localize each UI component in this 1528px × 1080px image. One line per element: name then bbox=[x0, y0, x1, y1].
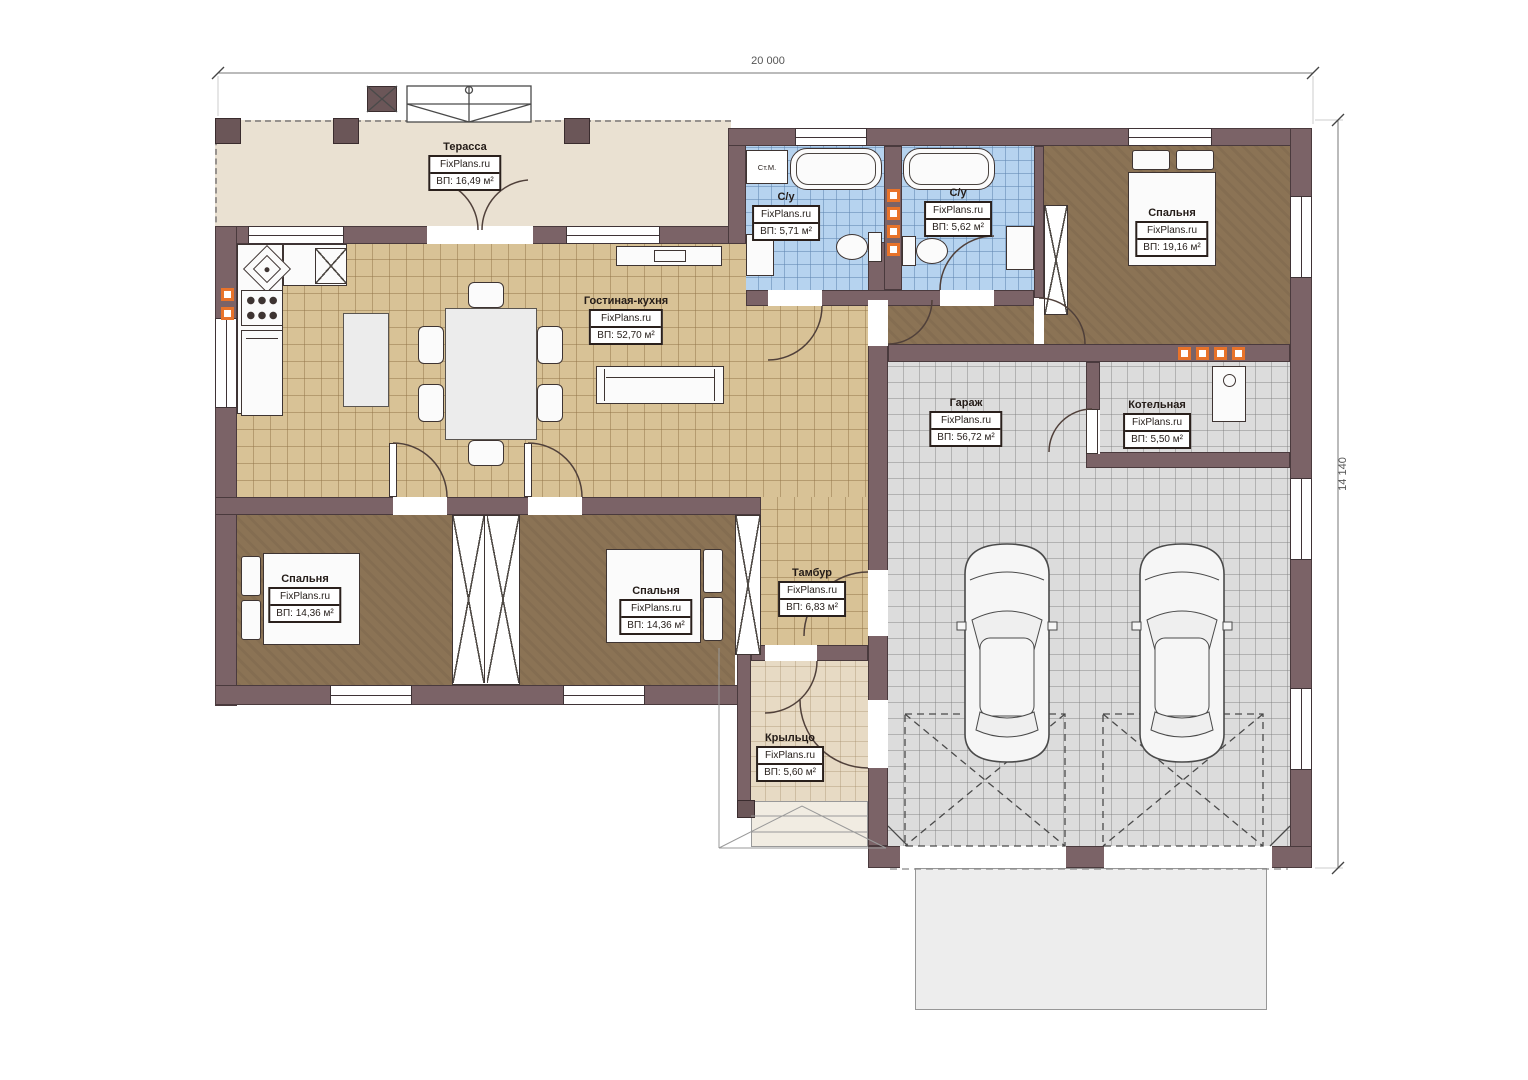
window-bedroom-main-top bbox=[1128, 128, 1212, 146]
room-name: С/у bbox=[752, 190, 820, 204]
door-opening-hall bbox=[868, 300, 888, 346]
bathtub-2 bbox=[903, 148, 995, 190]
vent-block bbox=[887, 207, 900, 220]
bed-main-pillow bbox=[1176, 150, 1214, 170]
watermark: FixPlans.ru bbox=[621, 601, 690, 618]
room-label-terrace: Терасса FixPlans.ru ВП: 16,49 м² bbox=[428, 140, 501, 191]
bed-main-pillow bbox=[1132, 150, 1170, 170]
room-area: ВП: 5,50 м² bbox=[1125, 432, 1189, 447]
room-area: ВП: 14,36 м² bbox=[621, 618, 690, 633]
room-name: С/у bbox=[924, 186, 992, 200]
kitchen-sink2-icon bbox=[315, 248, 347, 284]
window-garage-right-1 bbox=[1290, 478, 1312, 560]
wall-bath2-right bbox=[1034, 146, 1044, 298]
wall-boiler-left bbox=[1086, 362, 1100, 410]
window-bedroom-a bbox=[330, 685, 412, 705]
watermark: FixPlans.ru bbox=[926, 203, 990, 220]
stove-icon bbox=[241, 290, 283, 326]
room-name: Тамбур bbox=[778, 566, 846, 580]
window-bedroom-main-right bbox=[1290, 196, 1312, 278]
room-label-boiler-room: Котельная FixPlans.ru ВП: 5,50 м² bbox=[1123, 398, 1191, 449]
room-area: ВП: 5,71 м² bbox=[754, 224, 818, 239]
room-area: ВП: 5,62 м² bbox=[926, 220, 990, 235]
bathtub-1 bbox=[790, 148, 882, 190]
floor-plan: Ст.М. bbox=[0, 0, 1528, 1080]
room-area: ВП: 6,83 м² bbox=[780, 600, 844, 615]
washing-machine: Ст.М. bbox=[746, 150, 788, 184]
terrace-post-2 bbox=[333, 118, 359, 144]
window-bath1 bbox=[795, 128, 867, 146]
room-name: Котельная bbox=[1123, 398, 1191, 412]
sofa-arm bbox=[597, 369, 605, 401]
chair bbox=[468, 282, 504, 308]
room-label-porch: Крыльцо FixPlans.ru ВП: 5,60 м² bbox=[756, 731, 824, 782]
door-opening-vestibule-porch bbox=[765, 645, 817, 661]
toilet-2-bowl bbox=[916, 238, 948, 264]
vent-block bbox=[887, 225, 900, 238]
tv-unit bbox=[616, 246, 722, 266]
wall-bedrooms-bottom bbox=[215, 685, 751, 705]
dining-table bbox=[445, 308, 537, 440]
room-name: Спальня bbox=[619, 584, 692, 598]
room-name: Спальня bbox=[1135, 206, 1208, 220]
room-area: ВП: 52,70 м² bbox=[591, 328, 660, 343]
toilet-1-tank bbox=[868, 232, 882, 262]
watermark: FixPlans.ru bbox=[758, 748, 822, 765]
dimension-height: 14 140 bbox=[1337, 439, 1349, 509]
room-label-living-kitchen: Гостиная-кухня FixPlans.ru ВП: 52,70 м² bbox=[584, 294, 668, 345]
watermark: FixPlans.ru bbox=[430, 157, 499, 174]
door-opening-bedroom-main bbox=[1034, 298, 1044, 344]
vent-block bbox=[887, 243, 900, 256]
wall-porch-left bbox=[737, 645, 751, 805]
bed-a-pillow bbox=[241, 600, 261, 640]
room-name: Гостиная-кухня bbox=[584, 294, 668, 308]
door-leaf-bedroom-a bbox=[389, 443, 397, 497]
room-label-bathroom-2: С/у FixPlans.ru ВП: 5,62 м² bbox=[924, 186, 992, 237]
bed-b-pillow bbox=[703, 549, 723, 593]
room-label-bedroom-a: Спальня FixPlans.ru ВП: 14,36 м² bbox=[268, 572, 341, 623]
vent-block bbox=[1232, 347, 1245, 360]
watermark: FixPlans.ru bbox=[1137, 223, 1206, 240]
door-opening-bath1 bbox=[768, 290, 822, 306]
vent-block bbox=[221, 288, 234, 301]
room-label-bedroom-b: Спальня FixPlans.ru ВП: 14,36 м² bbox=[619, 584, 692, 635]
door-opening-bath2 bbox=[940, 290, 994, 306]
bed-a-pillow bbox=[241, 556, 261, 596]
room-label-vestibule: Тамбур FixPlans.ru ВП: 6,83 м² bbox=[778, 566, 846, 617]
vent-block bbox=[1178, 347, 1191, 360]
room-label-bedroom-main: Спальня FixPlans.ru ВП: 19,16 м² bbox=[1135, 206, 1208, 257]
wall-bedroom-strip-top bbox=[215, 497, 761, 515]
window-kitchen-left bbox=[215, 318, 237, 408]
sofa-arm bbox=[707, 369, 715, 401]
vent-block bbox=[1214, 347, 1227, 360]
watermark: FixPlans.ru bbox=[931, 413, 1000, 430]
chair bbox=[537, 384, 563, 422]
room-area: ВП: 14,36 м² bbox=[270, 606, 339, 621]
fridge-icon bbox=[241, 330, 283, 416]
room-area: ВП: 16,49 м² bbox=[430, 174, 499, 189]
vanity-2 bbox=[1006, 226, 1034, 270]
door-opening-terrace bbox=[427, 226, 533, 244]
sofa-back bbox=[606, 369, 714, 378]
watermark: FixPlans.ru bbox=[780, 583, 844, 600]
chair bbox=[537, 326, 563, 364]
bed-b-pillow bbox=[703, 597, 723, 641]
room-name: Гараж bbox=[929, 396, 1002, 410]
toilet-2-tank bbox=[902, 236, 916, 266]
dimension-width: 20 000 bbox=[728, 55, 808, 67]
door-leaf-bedroom-b bbox=[524, 443, 532, 497]
room-label-bathroom-1: С/у FixPlans.ru ВП: 5,71 м² bbox=[752, 190, 820, 241]
vent-block bbox=[221, 307, 234, 320]
chimney bbox=[367, 86, 397, 112]
door-leaf-boiler bbox=[1086, 409, 1098, 454]
terrace-post-1 bbox=[215, 118, 241, 144]
watermark: FixPlans.ru bbox=[1125, 415, 1189, 432]
window-living-1 bbox=[248, 226, 344, 244]
terrace-post-3 bbox=[564, 118, 590, 144]
room-area: ВП: 56,72 м² bbox=[931, 430, 1000, 445]
window-garage-right-2 bbox=[1290, 688, 1312, 770]
door-opening-bedroom-a bbox=[393, 497, 447, 515]
chair bbox=[418, 384, 444, 422]
window-bedroom-b bbox=[563, 685, 645, 705]
toilet-1-bowl bbox=[836, 234, 868, 260]
wall-boiler-bottom bbox=[1086, 452, 1290, 468]
garage-door-opening-1 bbox=[900, 846, 1066, 868]
wardrobe-bedroom-b bbox=[735, 515, 761, 655]
driveway-apron bbox=[915, 868, 1267, 1010]
door-opening-bedroom-b bbox=[528, 497, 582, 515]
boiler-unit bbox=[1212, 366, 1246, 422]
vent-block bbox=[1196, 347, 1209, 360]
chair bbox=[468, 440, 504, 466]
chair bbox=[418, 326, 444, 364]
kitchen-island bbox=[343, 313, 389, 407]
vent-block bbox=[887, 189, 900, 202]
garage-door-opening-2 bbox=[1104, 846, 1272, 868]
room-label-garage: Гараж FixPlans.ru ВП: 56,72 м² bbox=[929, 396, 1002, 447]
door-opening-porch-outer bbox=[868, 700, 888, 768]
room-name: Терасса bbox=[428, 140, 501, 154]
wardrobe-main-bedroom bbox=[1044, 205, 1068, 315]
watermark: FixPlans.ru bbox=[754, 207, 818, 224]
door-opening-vestibule-garage bbox=[868, 570, 888, 636]
room-name: Крыльцо bbox=[756, 731, 824, 745]
porch-post bbox=[737, 800, 755, 818]
wall-bedroom-main-bottom bbox=[888, 344, 1290, 362]
sofa bbox=[596, 366, 724, 404]
room-area: ВП: 19,16 м² bbox=[1137, 240, 1206, 255]
watermark: FixPlans.ru bbox=[591, 311, 660, 328]
watermark: FixPlans.ru bbox=[270, 589, 339, 606]
window-living-2 bbox=[566, 226, 660, 244]
room-area: ВП: 5,60 м² bbox=[758, 765, 822, 780]
wardrobe-hall bbox=[452, 515, 520, 685]
porch-steps bbox=[751, 801, 868, 847]
room-name: Спальня bbox=[268, 572, 341, 586]
